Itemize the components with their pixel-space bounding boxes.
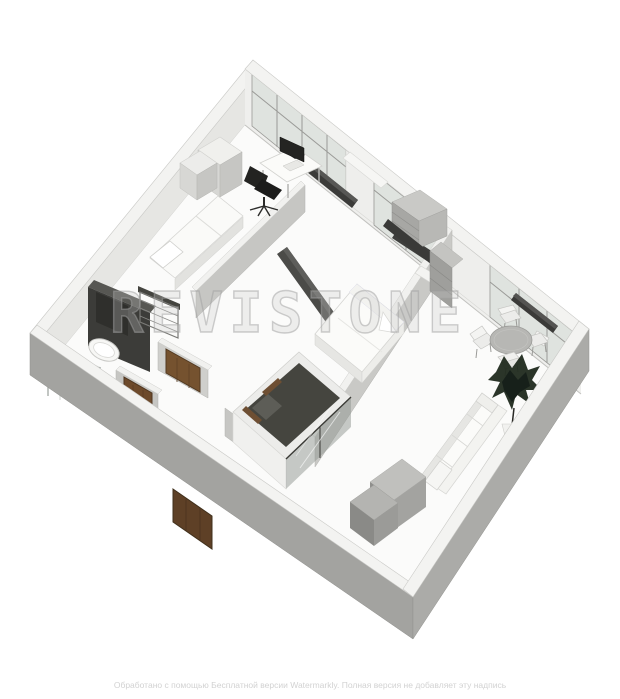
entrance-door [173, 489, 212, 549]
watermark-brand: REVISTONE [110, 281, 467, 346]
apartment-3d-render: REVISTONE Обработано с помощью Бесплатно… [0, 0, 620, 699]
apartment-render-page: REVISTONE Обработано с помощью Бесплатно… [0, 0, 620, 699]
footer-processing-notice: Обработано с помощью Бесплатной версии W… [114, 680, 507, 690]
